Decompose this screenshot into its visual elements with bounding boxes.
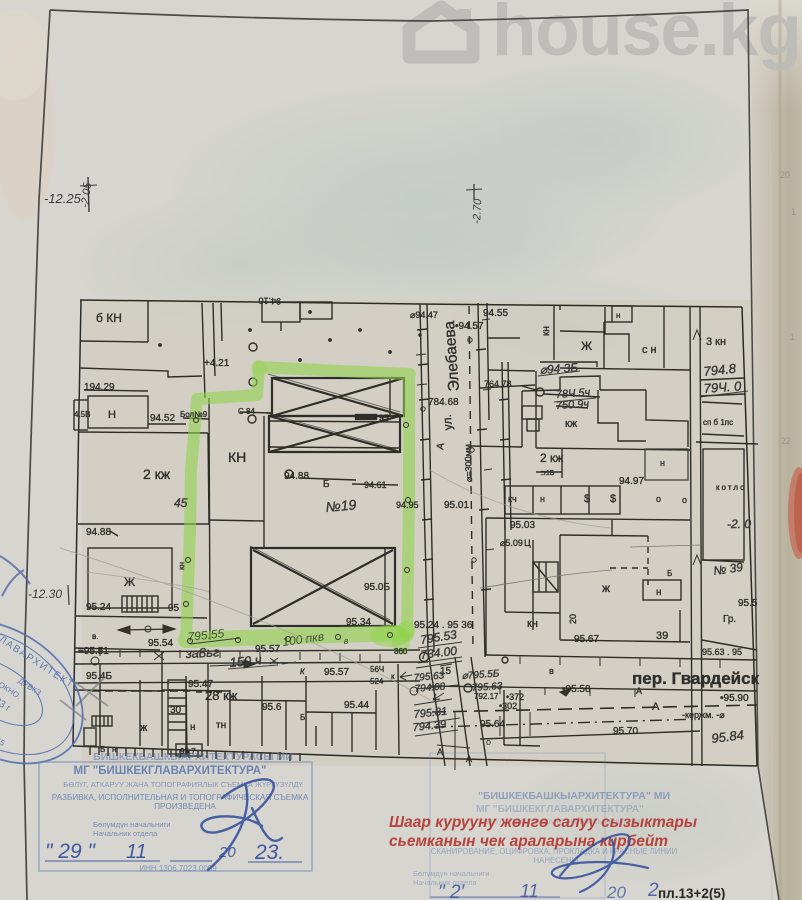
- svg-text:95.4Б: 95.4Б: [86, 671, 112, 682]
- svg-text:А: А: [437, 747, 443, 757]
- svg-text:БИШКЕКБАШКЫАРХИТЕКТУРАСЫ МИ: БИШКЕКБАШКЫАРХИТЕКТУРАСЫ МИ: [93, 751, 293, 763]
- svg-text:•94.57: •94.57: [455, 321, 484, 332]
- svg-text:•302: •302: [499, 701, 517, 711]
- svg-text:94.10: 94.10: [258, 296, 281, 307]
- svg-text:95: 95: [379, 413, 389, 423]
- svg-text:1: 1: [791, 207, 796, 217]
- svg-text:95.34: 95.34: [346, 617, 371, 628]
- svg-text:ИНН 1306 7023 0089: ИНН 1306 7023 0089: [139, 864, 217, 873]
- svg-text:94.95: 94.95: [396, 500, 419, 510]
- svg-text:95.44: 95.44: [344, 700, 369, 711]
- svg-text:11: 11: [126, 841, 147, 863]
- svg-text:пер. Гвардейск: пер. Гвардейск: [632, 669, 760, 688]
- svg-text:о: о: [656, 494, 661, 504]
- svg-text:⊐1Б: ⊐1Б: [540, 470, 555, 477]
- svg-text:94.88: 94.88: [86, 527, 111, 538]
- svg-text:+4.21: +4.21: [204, 358, 230, 369]
- svg-text:23.: 23.: [254, 841, 284, 864]
- svg-text:кн: кн: [541, 326, 552, 336]
- svg-text:БӨЛҮГ, АТКАРУУ ЖАНА ТОПОГРАФИЯ: БӨЛҮГ, АТКАРУУ ЖАНА ТОПОГРАФИЯЛЫК СЪЕМКА…: [63, 780, 303, 789]
- svg-text:95.03: 95.03: [510, 520, 535, 531]
- svg-text:⌀94 3Б: ⌀94 3Б: [539, 360, 578, 377]
- svg-text:н: н: [656, 587, 662, 598]
- svg-text:б КН: б КН: [96, 311, 122, 325]
- svg-text:"БИШКЕКБАШКЫАРХИТЕКТУРА" МИ: "БИШКЕКБАШКЫАРХИТЕКТУРА" МИ: [478, 790, 670, 802]
- svg-text:95.6: 95.6: [262, 702, 282, 713]
- svg-text:194.29: 194.29: [84, 382, 115, 393]
- svg-text:1: 1: [790, 332, 795, 342]
- svg-text:А: А: [652, 701, 660, 713]
- svg-text:≡95.51: ≡95.51: [78, 646, 109, 657]
- svg-text:кч: кч: [508, 494, 517, 504]
- svg-text:н: н: [540, 494, 545, 504]
- svg-text:Начальник отдела: Начальник отдела: [93, 829, 158, 838]
- svg-text:20: 20: [606, 883, 626, 900]
- svg-text:сп б 1пс: сп б 1пс: [703, 418, 733, 427]
- svg-text:Ж: Ж: [581, 339, 592, 353]
- svg-text:кж: кж: [565, 418, 578, 430]
- svg-text:С 84: С 84: [238, 407, 255, 416]
- svg-text:94.97: 94.97: [619, 476, 644, 487]
- svg-text:22: 22: [781, 436, 791, 446]
- svg-text:$: $: [584, 493, 590, 505]
- svg-text:-2.70: -2.70: [471, 198, 484, 225]
- svg-text:ул.: ул.: [440, 414, 455, 431]
- svg-text:Н: Н: [108, 409, 116, 421]
- svg-text:⌀5.09: ⌀5.09: [500, 538, 523, 548]
- svg-text:2 кж: 2 кж: [143, 466, 171, 482]
- svg-text:с н: с н: [642, 344, 657, 356]
- svg-text:95.54: 95.54: [148, 638, 173, 649]
- svg-text:784.68: 784.68: [428, 397, 459, 408]
- svg-text:⌀94.47: ⌀94.47: [410, 310, 438, 320]
- svg-text:за8ьг: за8ьг: [184, 644, 220, 661]
- svg-text:в.: в.: [92, 632, 98, 641]
- svg-text:№19: №19: [325, 496, 357, 515]
- svg-text:о: о: [486, 737, 491, 747]
- svg-text:4.5В: 4.5В: [74, 410, 90, 419]
- svg-text:" 29 ": " 29 ": [45, 840, 96, 863]
- svg-text:20: 20: [568, 614, 578, 624]
- svg-text:-12.30: -12.30: [28, 587, 62, 601]
- svg-text:" 2′: " 2′: [438, 882, 466, 900]
- svg-text:Б: Б: [323, 479, 330, 490]
- svg-text:ж: ж: [602, 581, 610, 595]
- svg-text:2 кж: 2 кж: [540, 451, 563, 465]
- svg-text:-2. 0: -2. 0: [727, 517, 751, 531]
- svg-text:Шаар курууну жөнгө салуу сызык: Шаар курууну жөнгө салуу сызыктары: [389, 814, 697, 831]
- svg-text:н: н: [190, 722, 196, 733]
- svg-text:•95.90: •95.90: [720, 693, 749, 704]
- svg-text:Б: Б: [300, 713, 305, 722]
- svg-text:о: о: [682, 495, 687, 505]
- svg-text:ПРОИЗВЕДЕНА: ПРОИЗВЕДЕНА: [154, 802, 216, 811]
- svg-text:39: 39: [656, 630, 668, 642]
- svg-text:95.0Б: 95.0Б: [364, 582, 390, 593]
- svg-text:30: 30: [170, 705, 182, 716]
- svg-text:ж: ж: [140, 722, 148, 734]
- svg-text:860: 860: [394, 647, 408, 656]
- svg-text:Бол№9: Бол№9: [180, 410, 208, 419]
- svg-text:94.61: 94.61: [364, 480, 387, 490]
- svg-text:764.78: 764.78: [484, 379, 512, 389]
- svg-text:524: 524: [370, 677, 384, 686]
- svg-text:95.64: 95.64: [480, 719, 505, 730]
- svg-text:тн: тн: [216, 720, 226, 731]
- svg-text:95.57: 95.57: [324, 667, 349, 678]
- svg-text:795.63: 795.63: [471, 681, 503, 694]
- svg-text:95.70: 95.70: [613, 726, 638, 737]
- svg-text:house.kg: house.kg: [492, 0, 800, 71]
- svg-text:$: $: [610, 493, 616, 505]
- svg-text:Бөлүмдүн начальниги: Бөлүмдүн начальниги: [93, 820, 170, 829]
- svg-text:⌀=300мм: ⌀=300мм: [463, 444, 474, 482]
- svg-text:Ц: Ц: [524, 538, 531, 548]
- svg-text:45: 45: [174, 496, 188, 510]
- svg-text:11: 11: [520, 881, 539, 900]
- svg-text:94.88: 94.88: [284, 471, 309, 482]
- svg-text:кн: кн: [527, 618, 538, 630]
- svg-text:н: н: [616, 311, 620, 320]
- svg-text:20: 20: [780, 170, 790, 180]
- svg-text:в: в: [549, 666, 554, 676]
- svg-text:95.01: 95.01: [444, 500, 469, 511]
- svg-text:кн: кн: [177, 562, 186, 570]
- svg-text:Гр.: Гр.: [723, 614, 736, 625]
- svg-text:КН: КН: [228, 449, 246, 465]
- svg-text:котло: котло: [716, 483, 747, 492]
- svg-text:-кержм. -⌀: -кержм. -⌀: [682, 710, 725, 720]
- svg-text:94.55: 94.55: [483, 308, 508, 319]
- svg-text:95: 95: [168, 603, 180, 614]
- svg-text:Бөлүмдүн начальниги: Бөлүмдүн начальниги: [413, 869, 490, 878]
- svg-text:95.63 . 95: 95.63 . 95: [702, 647, 742, 657]
- svg-text:79Ч. 0: 79Ч. 0: [703, 378, 742, 396]
- svg-text:3 кн: 3 кн: [706, 336, 726, 348]
- svg-text:МГ "БИШКЕКГЛАВАРХИТЕКТУРА": МГ "БИШКЕКГЛАВАРХИТЕКТУРА": [74, 765, 267, 777]
- svg-text:95.67: 95.67: [574, 634, 599, 645]
- svg-text:пл.13+2(5): пл.13+2(5): [658, 886, 725, 900]
- svg-text:95.5: 95.5: [738, 598, 758, 609]
- svg-text:А: А: [636, 686, 642, 696]
- svg-text:А: А: [466, 754, 472, 764]
- svg-text:95.24: 95.24: [86, 602, 111, 613]
- svg-text:94.52: 94.52: [150, 413, 175, 424]
- svg-text:Б: Б: [667, 569, 672, 578]
- svg-text:-12.25: -12.25: [44, 191, 82, 206]
- svg-text:28 кж: 28 кж: [205, 688, 238, 703]
- svg-text:н: н: [660, 458, 665, 468]
